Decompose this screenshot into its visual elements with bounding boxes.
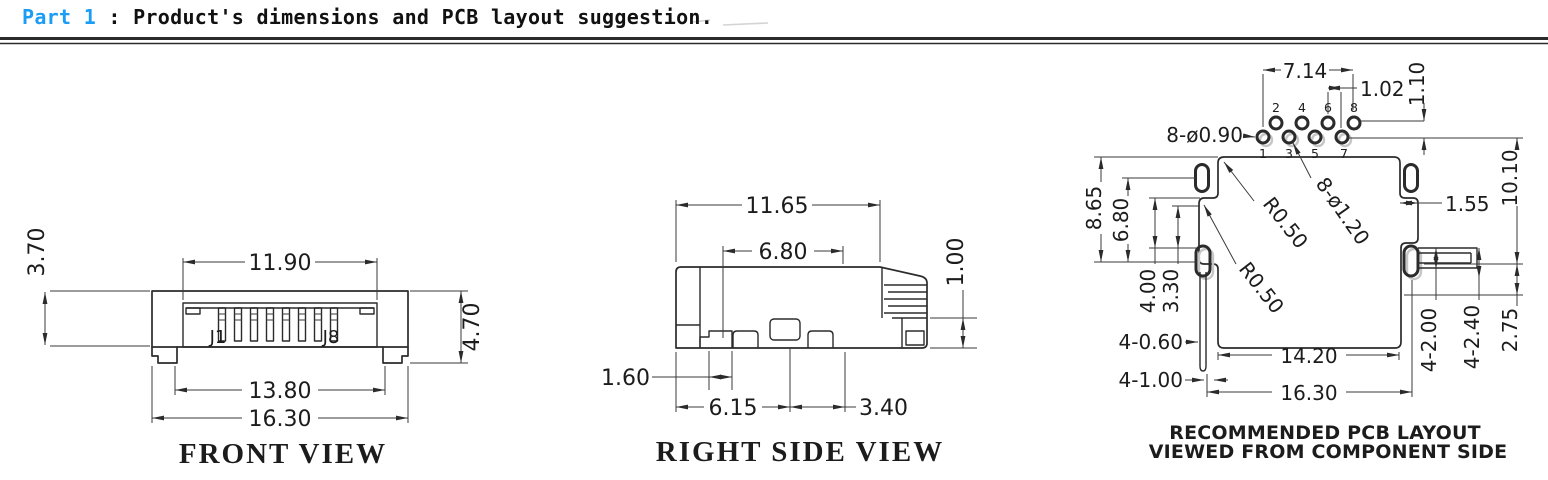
dim-text-8-o0-90: 8-ø0.90 <box>1166 123 1243 147</box>
dim-pcb-flange-height: 8.65 <box>1082 157 1218 262</box>
pcb-footprint-outline <box>1199 157 1418 348</box>
dim-text-6-80: 6.80 <box>759 240 808 265</box>
pcb-hole-6 <box>1322 117 1334 129</box>
front-left-foot <box>152 347 177 363</box>
pin-label-j8: J8 <box>322 327 340 348</box>
front-view-pins: J1 J8 <box>209 308 340 348</box>
dim-text-1-00: 1.00 <box>944 238 969 287</box>
label-pcb-narrow-slots: 4-0.60 <box>1119 330 1198 354</box>
front-view: J1 J8 11.90 3.70 4.70 13.80 <box>25 228 485 470</box>
pcb-hole-7 <box>1336 131 1348 143</box>
side-board-lock-detail <box>906 331 924 345</box>
dim-text-13-80: 13.80 <box>249 379 312 404</box>
dim-front-inner-width: 13.80 <box>175 366 385 404</box>
dim-pcb-overall-width: 16.30 <box>1207 280 1412 405</box>
dim-front-body-height: 3.70 <box>25 228 150 346</box>
dim-side-rear-depth: 3.40 <box>790 352 908 421</box>
pcb-hole-4 <box>1296 117 1308 129</box>
dim-text-16-30: 16.30 <box>249 407 312 432</box>
dim-side-upper-depth: 6.80 <box>723 240 843 338</box>
drawing-sheet: J1 J8 11.90 3.70 4.70 13.80 <box>0 0 1548 480</box>
dim-text-4-70: 4.70 <box>460 303 485 352</box>
dim-text-r0-50-a: R0.50 <box>1258 192 1313 253</box>
dim-pcb-slot-offset: 6.80 <box>1109 178 1196 262</box>
header-colon: : <box>108 5 120 29</box>
front-view-body-outline <box>152 291 408 363</box>
dim-text-11-65: 11.65 <box>746 194 809 219</box>
side-view-outline <box>676 267 927 348</box>
dim-text-7-14: 7.14 <box>1283 59 1328 83</box>
dim-text-6-80-pcb: 6.80 <box>1109 198 1133 243</box>
label-pcb-fillet-1: R0.50 <box>1224 162 1313 253</box>
dim-pcb-row-offset: 1.10 <box>1348 62 1523 155</box>
dim-text-1-55: 1.55 <box>1445 192 1490 216</box>
dim-text-10-10: 10.10 <box>1498 149 1522 206</box>
right-side-view-caption: RIGHT SIDE VIEW <box>656 436 944 468</box>
dim-pcb-pin-pitch: 1.02 <box>1328 77 1405 128</box>
dim-text-1-02: 1.02 <box>1360 77 1405 101</box>
pcb-pin-holes: 2 4 6 8 1 3 5 7 <box>1257 100 1360 161</box>
dim-side-tab-height: 1.00 <box>930 238 977 348</box>
dim-text-2-75: 2.75 <box>1498 308 1522 353</box>
dim-side-front-depth: 6.15 <box>676 348 790 421</box>
pcb-narrow-lead-slot <box>1200 272 1206 371</box>
label-pcb-holes-small: 8-ø0.90 <box>1166 123 1255 147</box>
pin-number-5: 5 <box>1311 146 1319 161</box>
side-rear-standoff <box>808 331 833 348</box>
front-view-caption: FRONT VIEW <box>179 438 387 470</box>
dim-text-4-2-40: 4-2.40 <box>1460 305 1484 369</box>
header-title: Product's dimensions and PCB layout sugg… <box>133 5 713 29</box>
pcb-slot-top-left <box>1196 165 1209 192</box>
dim-front-pin-span: 11.90 <box>183 251 377 300</box>
dim-text-3-70: 3.70 <box>25 228 50 277</box>
pin-number-2: 2 <box>1272 100 1280 115</box>
pcb-tab-hole <box>1418 248 1477 268</box>
pcb-caption-line2: VIEWED FROM COMPONENT SIDE <box>1149 441 1508 463</box>
dim-text-1-10: 1.10 <box>1405 62 1429 107</box>
pin-number-8: 8 <box>1350 100 1358 115</box>
side-front-standoff <box>733 331 758 348</box>
technical-drawing: J1 J8 11.90 3.70 4.70 13.80 <box>0 0 1548 480</box>
dim-pcb-side-slot-width: 1.55 <box>1400 192 1490 216</box>
label-pcb-wide-slots: 4-1.00 <box>1119 368 1228 392</box>
pcb-hole-8 <box>1348 117 1360 129</box>
pin-number-4: 4 <box>1298 100 1306 115</box>
right-side-view: 11.65 6.80 1.00 1.60 <box>601 194 977 468</box>
pin-number-7: 7 <box>1340 146 1348 161</box>
page-header: Part 1 : Product's dimensions and PCB la… <box>22 5 713 29</box>
side-center-boss <box>770 319 800 340</box>
dim-text-8-o1-20: 8-ø1.20 <box>1311 173 1375 250</box>
dim-text-3-30: 3.30 <box>1159 269 1183 314</box>
dim-text-3-40: 3.40 <box>859 396 908 421</box>
pcb-hole-3 <box>1283 131 1295 143</box>
pin-number-1: 1 <box>1259 146 1267 161</box>
dim-text-4-1-00: 4-1.00 <box>1119 368 1183 392</box>
dim-text-4-2-00: 4-2.00 <box>1417 308 1441 372</box>
dim-pcb-tab-slot-width: 4-2.40 <box>1460 248 1484 369</box>
header-part-label: Part 1 <box>22 5 96 29</box>
pcb-hole-2 <box>1270 117 1282 129</box>
pin-label-j1: J1 <box>209 327 227 348</box>
pcb-layout: 2 4 6 8 1 3 5 7 7.14 1.02 <box>1082 59 1523 463</box>
dim-text-16-30-pcb: 16.30 <box>1280 381 1337 405</box>
dim-text-r0-50-b: R0.50 <box>1234 257 1289 318</box>
header-spacer <box>121 5 133 29</box>
front-right-foot <box>383 347 408 363</box>
dim-pcb-slot-height: 3.30 <box>1159 206 1200 313</box>
dim-text-8-65: 8.65 <box>1082 186 1106 231</box>
dim-text-6-15: 6.15 <box>709 396 758 421</box>
dim-text-1-60: 1.60 <box>601 366 650 391</box>
pcb-slot-top-right <box>1405 165 1418 192</box>
dim-text-11-90: 11.90 <box>249 251 312 276</box>
pcb-hole-1 <box>1257 131 1269 143</box>
dim-front-total-height: 4.70 <box>410 291 485 363</box>
dim-text-4-0-60: 4-0.60 <box>1119 330 1183 354</box>
pcb-hole-5 <box>1309 131 1321 143</box>
dim-text-4-00: 4.00 <box>1136 269 1160 314</box>
pin-number-3: 3 <box>1285 146 1293 161</box>
dim-side-notch-width: 1.60 <box>601 351 732 391</box>
dim-text-14-20: 14.20 <box>1280 344 1337 368</box>
header-separator <box>96 5 108 29</box>
